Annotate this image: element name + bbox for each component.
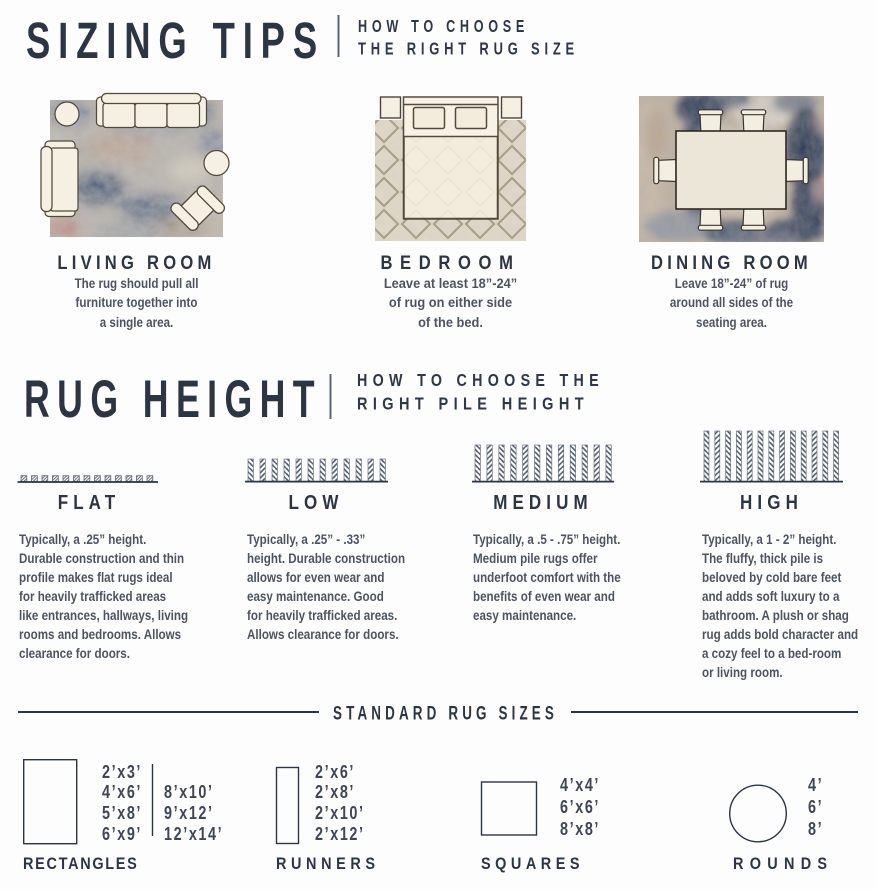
svg-text:THE RIGHT RUG SIZE: THE RIGHT RUG SIZE	[358, 39, 579, 59]
svg-text:RUG HEIGHT: RUG HEIGHT	[24, 370, 322, 429]
svg-text:HOW TO CHOOSE: HOW TO CHOOSE	[358, 16, 529, 36]
svg-text:SIZING TIPS: SIZING TIPS	[26, 12, 325, 69]
svg-text:RIGHT PILE HEIGHT: RIGHT PILE HEIGHT	[357, 394, 589, 414]
svg-text:HOW TO CHOOSE THE: HOW TO CHOOSE THE	[357, 370, 604, 390]
svg-text:STANDARD RUG SIZES: STANDARD RUG SIZES	[333, 703, 558, 725]
